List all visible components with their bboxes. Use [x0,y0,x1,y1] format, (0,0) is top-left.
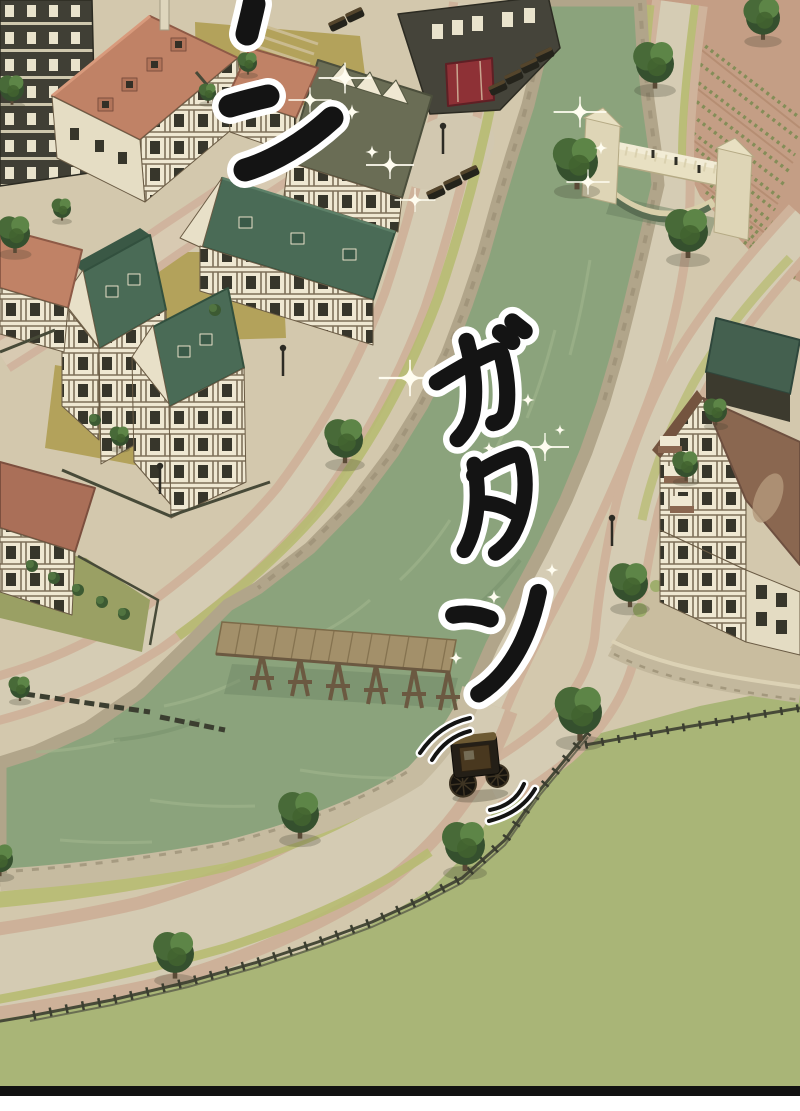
manga-panel: ガタン ン [0,0,800,1111]
panel-border [0,1086,800,1096]
bridge-abutment-right [714,148,752,240]
town-scene [0,0,800,1111]
red-shopfront [446,58,494,106]
page-margin [0,1096,800,1111]
